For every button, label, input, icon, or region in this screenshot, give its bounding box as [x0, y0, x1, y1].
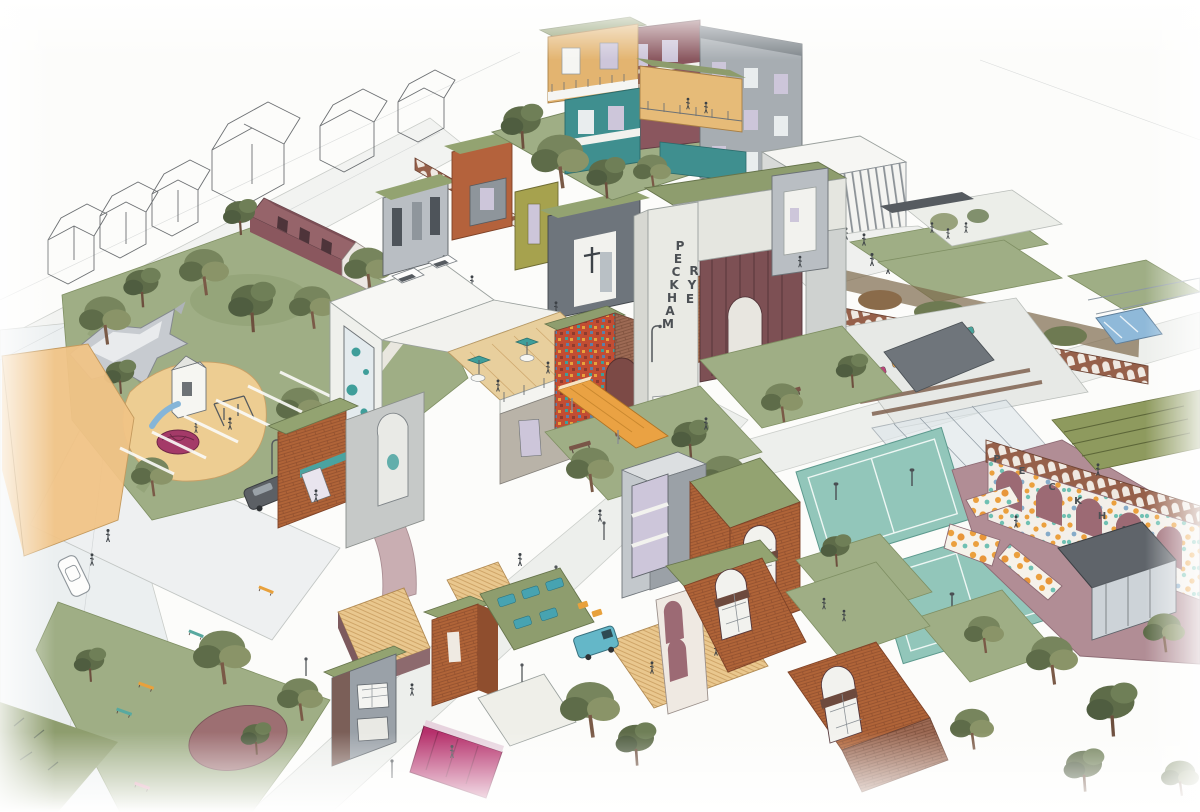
- portal-letter: M: [662, 317, 674, 331]
- arch-letter: E: [1019, 466, 1026, 477]
- portal-letter: A: [665, 304, 675, 318]
- portal-letter: Y: [687, 278, 697, 292]
- portal-letter: K: [669, 278, 679, 292]
- portal-letter: P: [676, 239, 685, 253]
- arch-letter: P: [993, 454, 1000, 465]
- portal-letter: E: [686, 292, 694, 306]
- portal-letter: R: [689, 264, 698, 278]
- portal-letter: C: [672, 265, 681, 279]
- arch-letter: K: [1074, 496, 1083, 507]
- portal-letter: H: [667, 291, 677, 305]
- illustration-canvas: P E C K H A M R Y E: [0, 0, 1200, 812]
- secondary-portal: [772, 168, 828, 276]
- portal-letter: E: [674, 252, 682, 266]
- masterplan-illustration: P E C K H A M R Y E: [0, 0, 1200, 812]
- arch-letter: H: [1098, 511, 1106, 522]
- glazed-shaft: [632, 474, 668, 578]
- arch-letter: C: [1048, 482, 1055, 493]
